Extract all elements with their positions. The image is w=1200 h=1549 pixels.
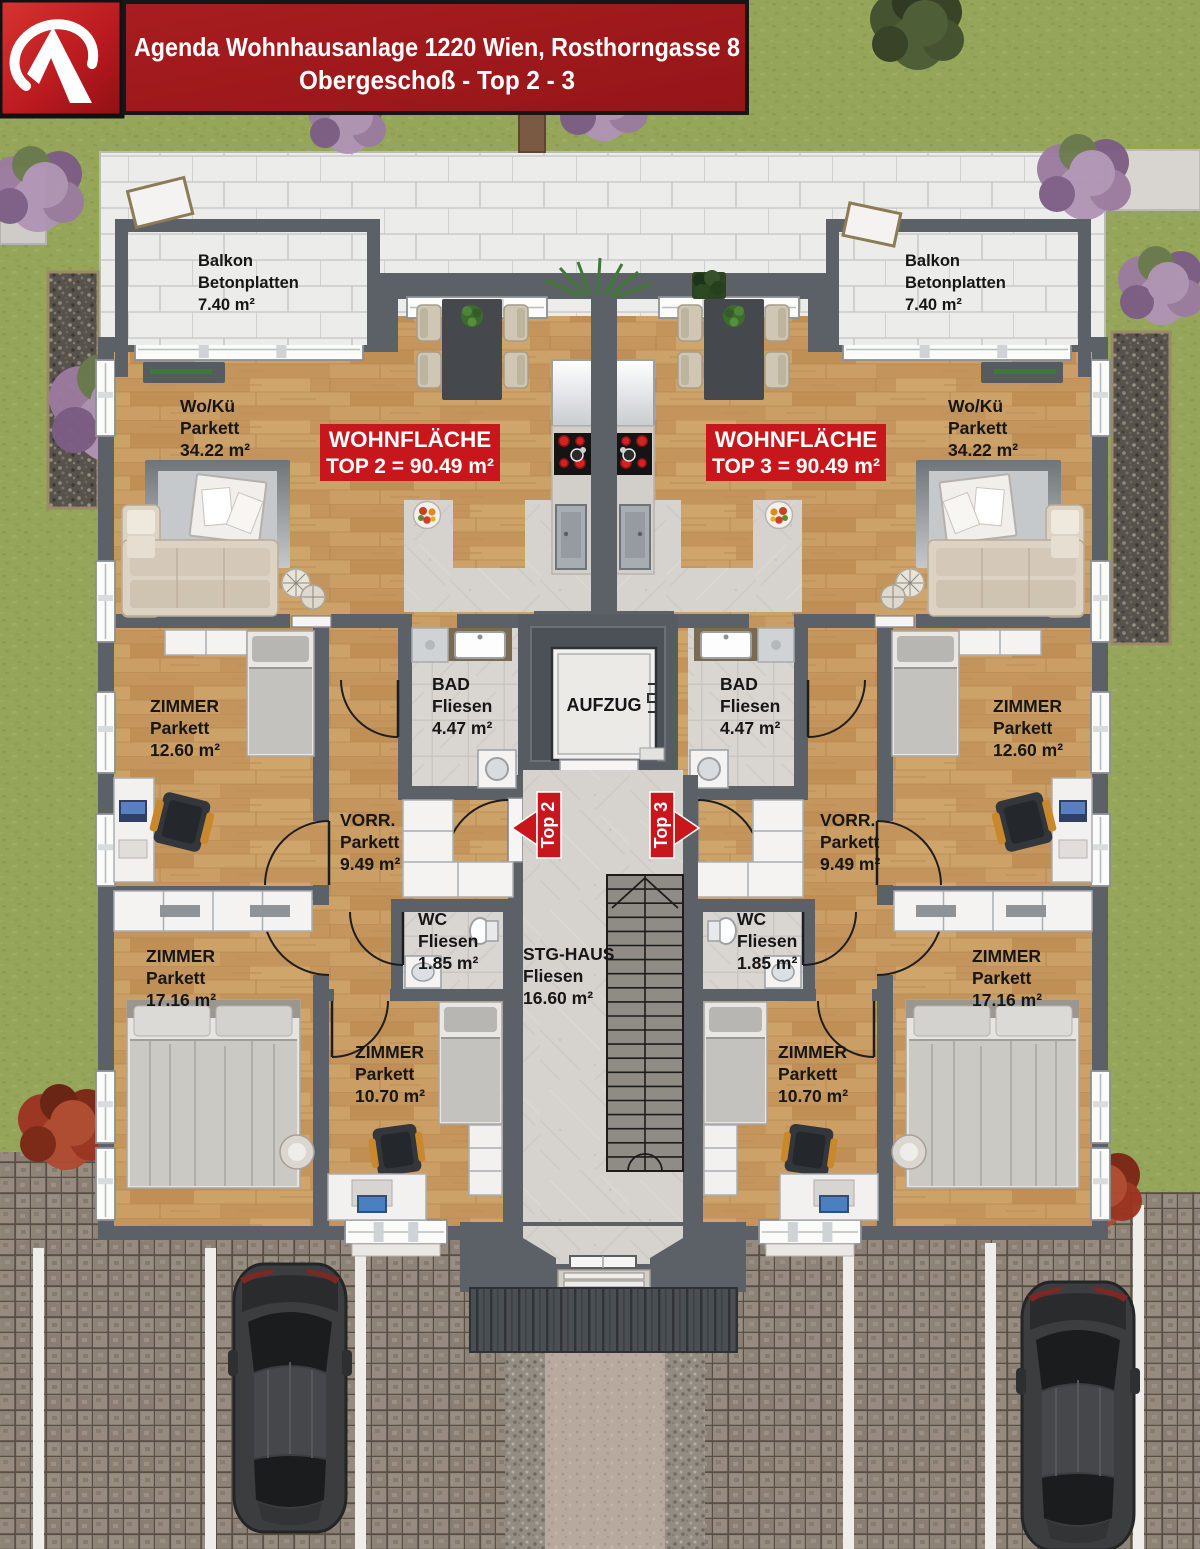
svg-text:Fliesen: Fliesen — [432, 696, 492, 716]
svg-text:Parkett: Parkett — [340, 832, 400, 852]
svg-text:Fliesen: Fliesen — [720, 696, 780, 716]
svg-text:TOP 2 = 90.49 m²: TOP 2 = 90.49 m² — [326, 455, 494, 478]
svg-text:Parkett: Parkett — [972, 968, 1032, 988]
svg-text:16.60 m²: 16.60 m² — [523, 988, 593, 1008]
svg-text:17.16 m²: 17.16 m² — [146, 990, 216, 1010]
svg-text:Betonplatten: Betonplatten — [905, 274, 1006, 292]
svg-text:Fliesen: Fliesen — [523, 966, 583, 986]
svg-text:12.60 m²: 12.60 m² — [150, 740, 220, 760]
svg-text:WC: WC — [737, 909, 767, 929]
svg-text:Top 2: Top 2 — [538, 802, 558, 849]
svg-text:ZIMMER: ZIMMER — [972, 946, 1041, 966]
svg-text:ZIMMER: ZIMMER — [355, 1042, 424, 1062]
svg-text:Wo/Kü: Wo/Kü — [948, 396, 1003, 416]
svg-text:TOP 3 = 90.49 m²: TOP 3 = 90.49 m² — [712, 455, 880, 478]
svg-text:Parkett: Parkett — [146, 968, 206, 988]
svg-text:WOHNFLÄCHE: WOHNFLÄCHE — [715, 427, 877, 452]
svg-text:Fliesen: Fliesen — [418, 931, 478, 951]
svg-text:7.40 m²: 7.40 m² — [198, 296, 255, 314]
svg-text:4.47 m²: 4.47 m² — [432, 718, 492, 738]
svg-text:Balkon: Balkon — [198, 252, 253, 270]
svg-text:17.16 m²: 17.16 m² — [972, 990, 1042, 1010]
svg-text:Parkett: Parkett — [820, 832, 880, 852]
svg-text:4.47 m²: 4.47 m² — [720, 718, 780, 738]
svg-text:VORR.: VORR. — [820, 810, 875, 830]
svg-text:Wo/Kü: Wo/Kü — [180, 396, 235, 416]
svg-text:Obergeschoß - Top 2 - 3: Obergeschoß - Top 2 - 3 — [299, 65, 575, 95]
svg-text:Parkett: Parkett — [948, 418, 1008, 438]
svg-text:Parkett: Parkett — [778, 1064, 838, 1084]
svg-text:WOHNFLÄCHE: WOHNFLÄCHE — [329, 427, 491, 452]
svg-text:ZIMMER: ZIMMER — [993, 696, 1062, 716]
svg-text:BAD: BAD — [432, 674, 470, 694]
svg-text:7.40 m²: 7.40 m² — [905, 296, 962, 314]
svg-text:WC: WC — [418, 909, 448, 929]
svg-text:Parkett: Parkett — [993, 718, 1053, 738]
svg-text:ZIMMER: ZIMMER — [150, 696, 219, 716]
svg-text:Balkon: Balkon — [905, 252, 960, 270]
svg-text:1.85 m²: 1.85 m² — [418, 953, 478, 973]
svg-text:34.22 m²: 34.22 m² — [948, 440, 1018, 460]
svg-text:STG-HAUS: STG-HAUS — [523, 944, 614, 964]
svg-text:AUFZUG: AUFZUG — [567, 695, 642, 715]
svg-text:34.22 m²: 34.22 m² — [180, 440, 250, 460]
svg-text:ZIMMER: ZIMMER — [146, 946, 215, 966]
svg-text:Agenda Wohnhausanlage 1220 Wie: Agenda Wohnhausanlage 1220 Wien, Rosthor… — [134, 32, 740, 62]
svg-text:VORR.: VORR. — [340, 810, 395, 830]
svg-text:Parkett: Parkett — [150, 718, 210, 738]
svg-text:ZIMMER: ZIMMER — [778, 1042, 847, 1062]
svg-text:1.85 m²: 1.85 m² — [737, 953, 797, 973]
svg-text:Betonplatten: Betonplatten — [198, 274, 299, 292]
svg-text:Parkett: Parkett — [355, 1064, 415, 1084]
svg-text:10.70 m²: 10.70 m² — [355, 1086, 425, 1106]
svg-text:10.70 m²: 10.70 m² — [778, 1086, 848, 1106]
svg-text:Parkett: Parkett — [180, 418, 240, 438]
svg-text:Fliesen: Fliesen — [737, 931, 797, 951]
svg-text:9.49 m²: 9.49 m² — [340, 854, 400, 874]
svg-text:12.60 m²: 12.60 m² — [993, 740, 1063, 760]
svg-text:Top 3: Top 3 — [651, 802, 671, 849]
svg-text:9.49 m²: 9.49 m² — [820, 854, 880, 874]
svg-text:BAD: BAD — [720, 674, 758, 694]
